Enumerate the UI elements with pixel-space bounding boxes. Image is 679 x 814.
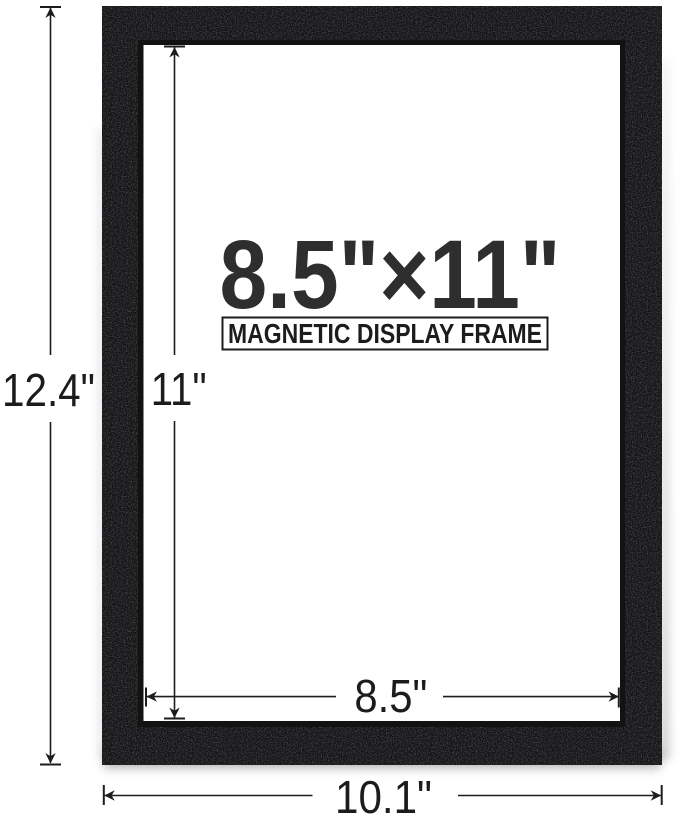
svg-text:11": 11" (151, 363, 207, 415)
svg-text:10.1": 10.1" (335, 771, 432, 814)
svg-text:8.5": 8.5" (354, 670, 427, 722)
svg-text:12.4": 12.4" (2, 364, 95, 416)
svg-text:MAGNETIC DISPLAY FRAME: MAGNETIC DISPLAY FRAME (228, 318, 542, 349)
svg-text:8.5"×11": 8.5"×11" (220, 220, 561, 329)
